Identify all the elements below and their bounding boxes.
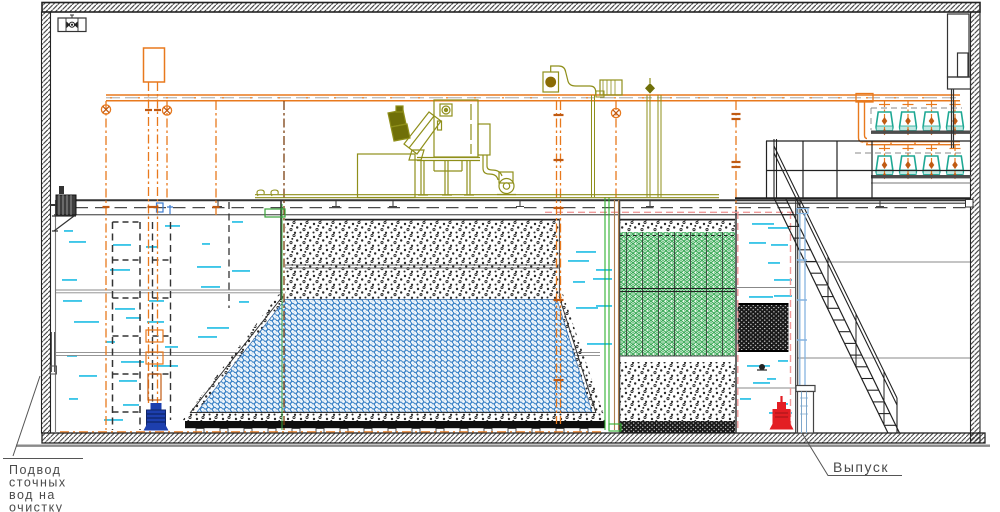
svg-text:Выпуск: Выпуск (833, 459, 889, 475)
svg-text:очистку: очистку (9, 501, 64, 512)
